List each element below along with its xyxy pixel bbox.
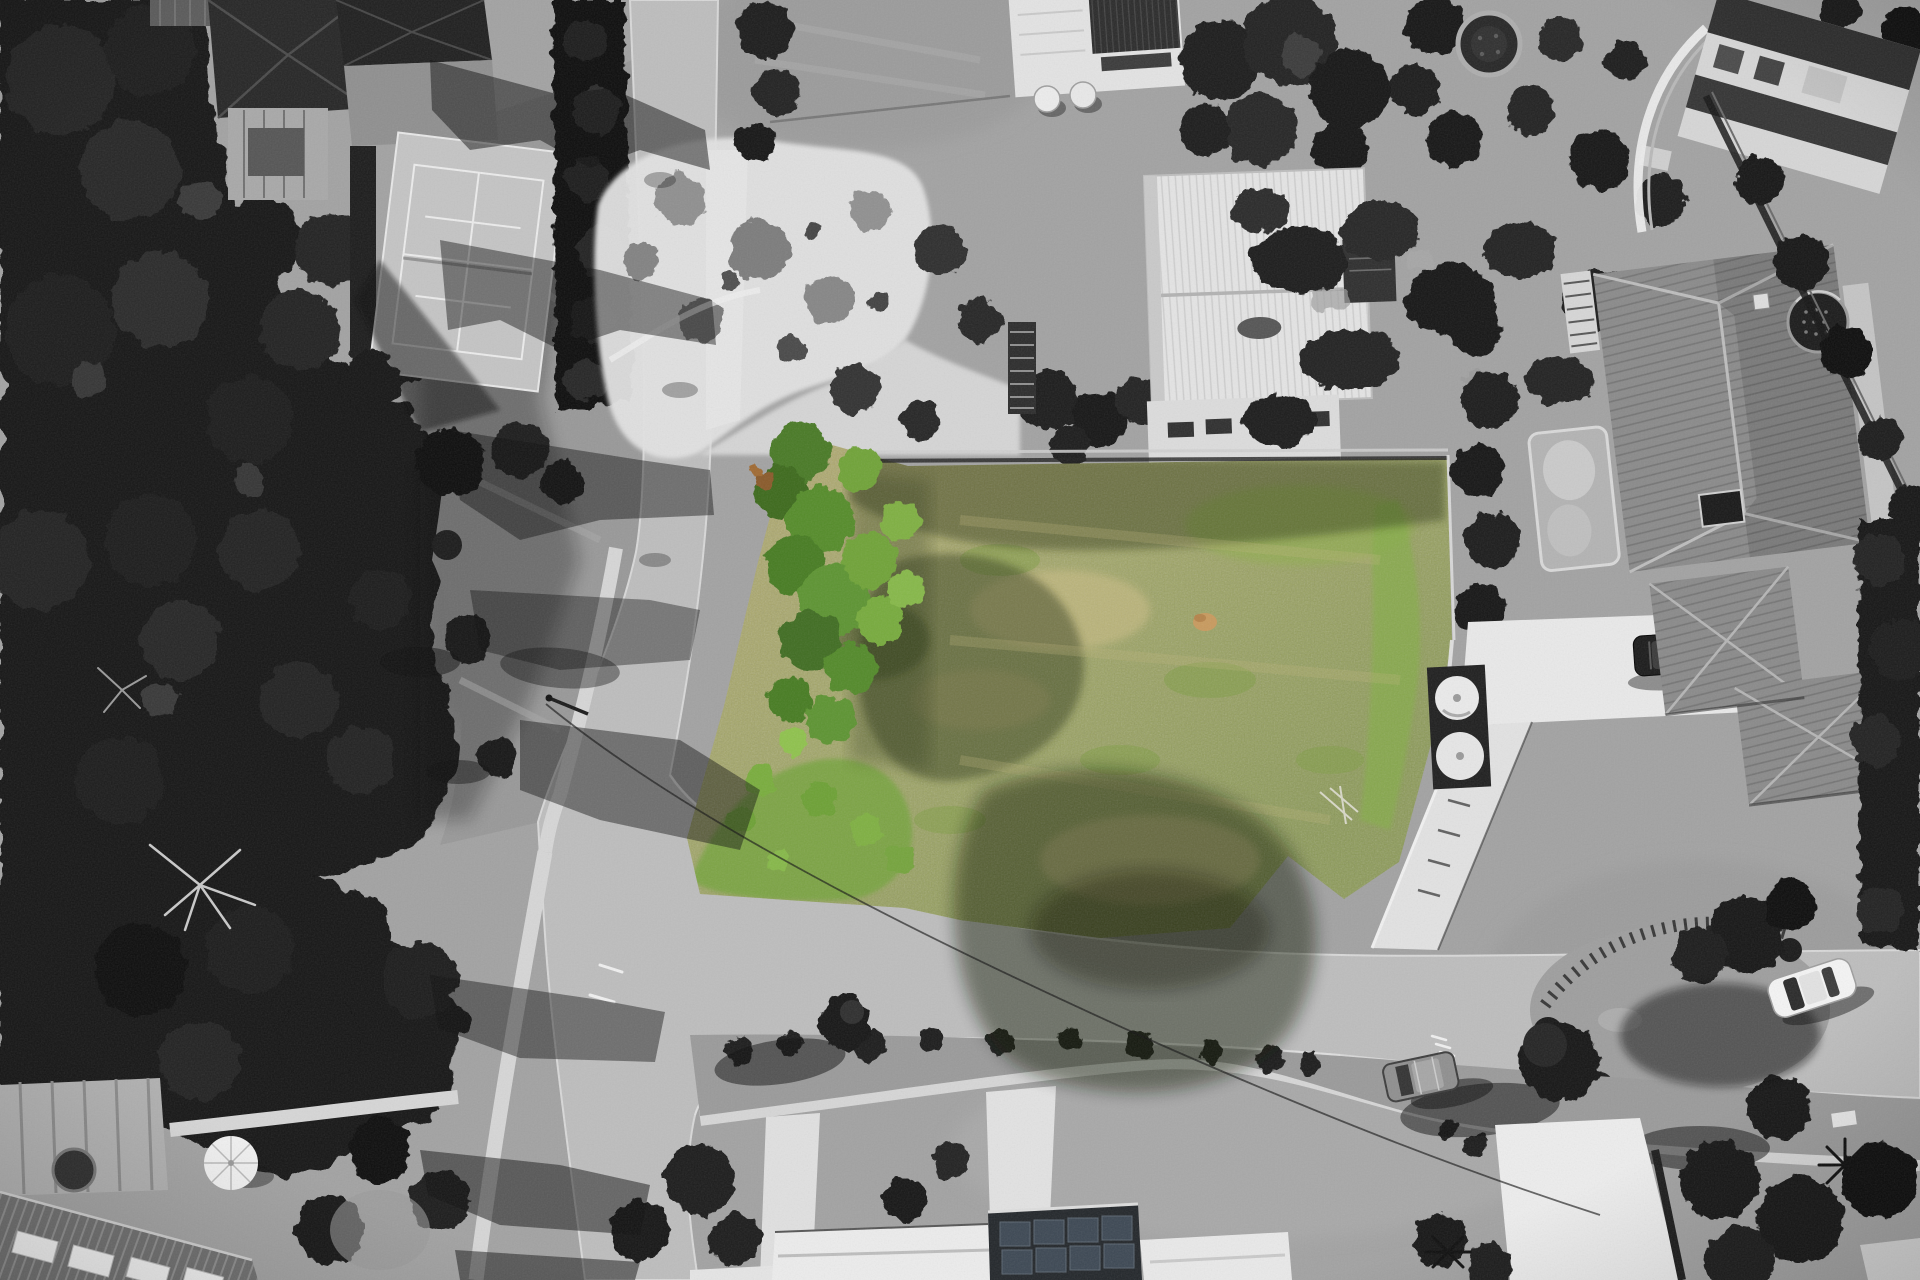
aerial-photo (0, 0, 1920, 1280)
vignette (0, 0, 1920, 1280)
aerial-photo-canvas (0, 0, 1920, 1280)
